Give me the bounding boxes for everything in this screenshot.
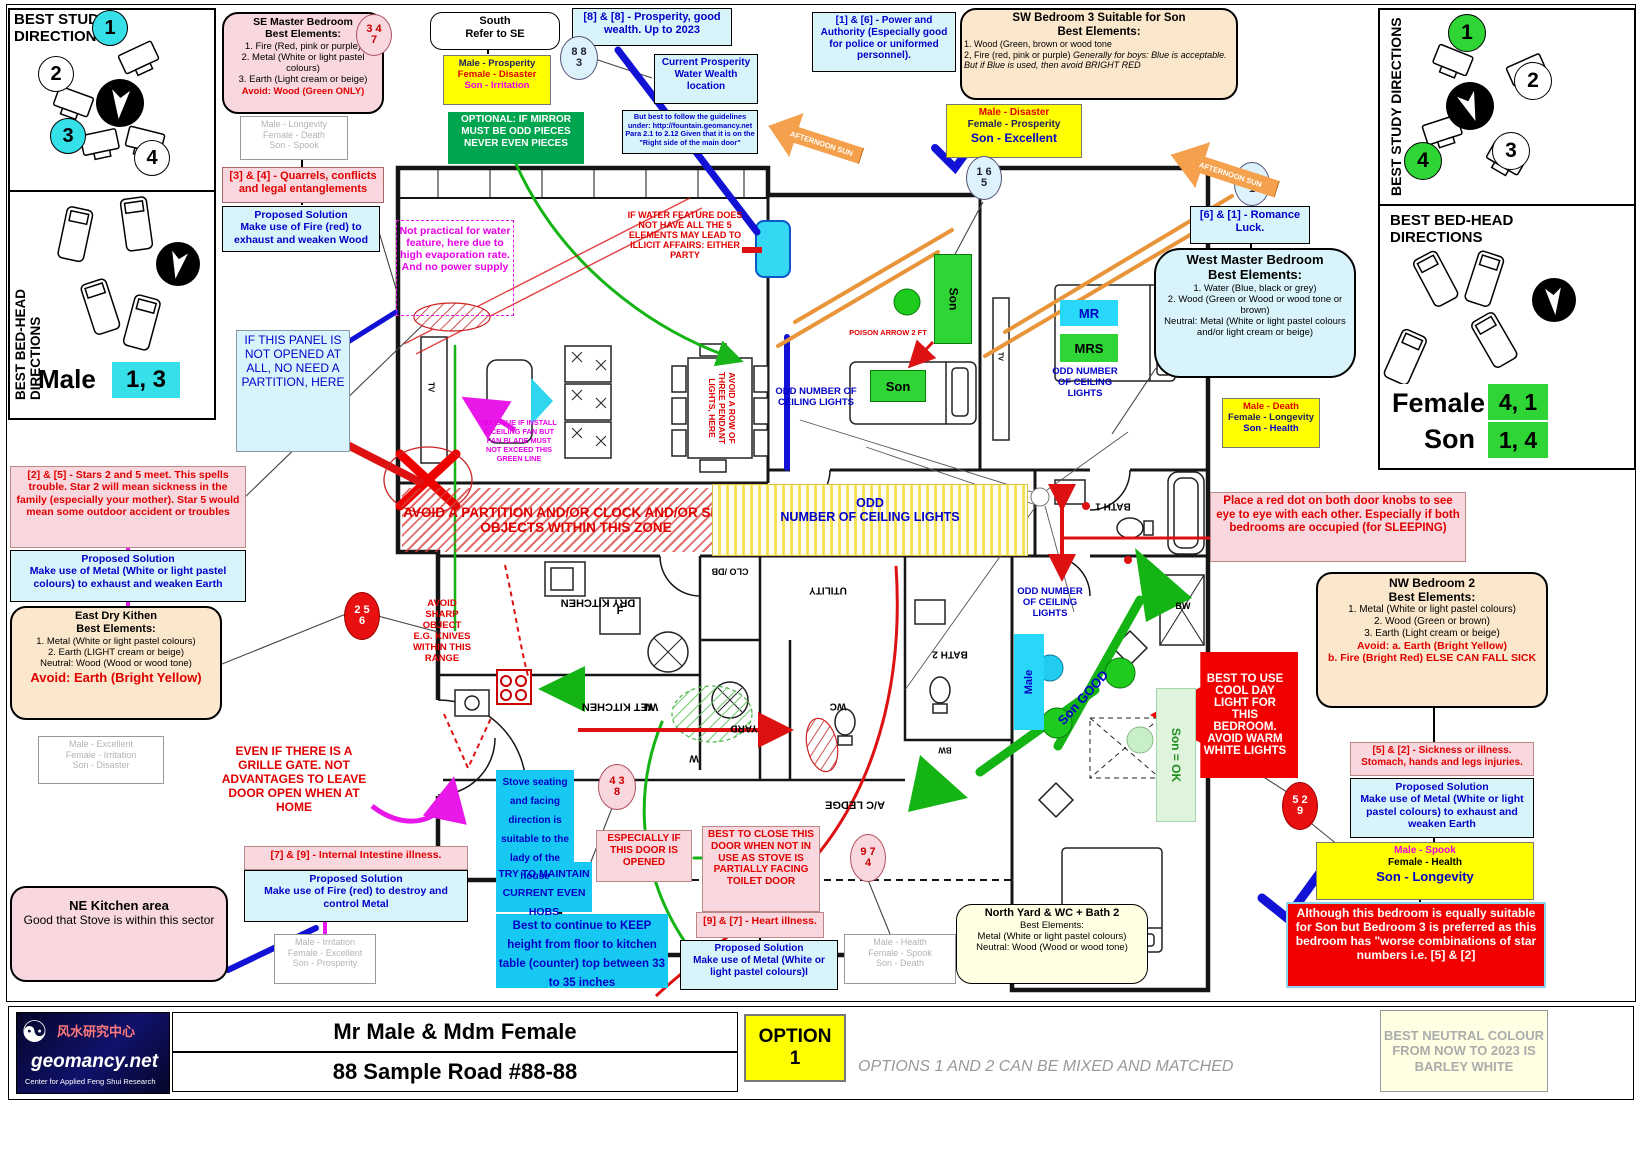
- callout-avoid-sharp: AVOID SHARP OBJECT E.G. KNIVES WITHIN TH…: [412, 598, 472, 664]
- room-label-utility: UTILITY: [795, 584, 861, 595]
- callout-intestine-79: [7] & [9] - Internal Intestine illness.: [244, 846, 468, 870]
- bedhead-right-son-values: 1, 4: [1488, 422, 1548, 458]
- bedhead-right-female-label: Female: [1392, 388, 1485, 419]
- callout-red-dot: Place a red dot on both door knobs to se…: [1210, 492, 1466, 562]
- odd-lights-label-3: ODD NUMBER OF CEILING LIGHTS: [1012, 586, 1088, 619]
- callout-north-yard: North Yard & WC + Bath 2 Best Elements: …: [956, 904, 1148, 984]
- room-label-tv-west: TV: [996, 352, 1003, 361]
- logo-tagline: Center for Applied Feng Shui Research: [25, 1077, 156, 1086]
- star-badge-256: 2 56: [344, 592, 380, 640]
- outcome-ne-kitchen: Male - Irritation Female - Excellent Son…: [274, 934, 376, 984]
- callout-illicit: IF WATER FEATURE DOES NOT HAVE ALL THE 5…: [624, 210, 746, 260]
- son-tag-vertical: Son: [934, 254, 972, 344]
- callout-quarrels: [3] & [4] - Quarrels, conflicts and lega…: [222, 167, 384, 203]
- room-label-tv-living: TV: [426, 382, 434, 392]
- room-label-ac-ledge: A/C LEDGE: [800, 798, 910, 810]
- room-label-bw-nw: BW: [1170, 602, 1196, 611]
- room-label-bw-bath: BW: [932, 745, 958, 753]
- footer-logo: ☯ 风水研究中心 geomancy.net Center for Applied…: [16, 1012, 170, 1094]
- callout-stars-25: [2] & [5] - Stars 2 and 5 meet. This spe…: [10, 466, 246, 548]
- callout-sickness-52: [5] & [2] - Sickness or illness. Stomach…: [1350, 742, 1534, 776]
- callout-east-kitchen: East Dry Kithen Best Elements: 1. Metal …: [10, 606, 222, 720]
- study-right-num-3: 3: [1492, 132, 1530, 170]
- solution-quarrels: Proposed Solution Make use of Fire (red)…: [222, 206, 380, 252]
- study-left-num-2: 2: [38, 56, 74, 92]
- callout-stove-seating: Stove seating and facing direction is su…: [496, 770, 574, 862]
- male-tag: Male: [1014, 634, 1044, 730]
- star-badge-883: 8 83: [560, 36, 598, 80]
- solution-97: Proposed Solution Make use of Metal (Whi…: [680, 940, 838, 990]
- study-left-num-3: 3: [50, 118, 86, 154]
- yin-yang-icon: ☯: [21, 1015, 48, 1050]
- star-badge-347: 3 47: [356, 14, 392, 56]
- room-label-yard: YARD: [716, 722, 772, 733]
- room-label-washer: W: [686, 752, 702, 763]
- callout-sw-bedroom3: SW Bedroom 3 Suitable for Son Best Eleme…: [960, 8, 1238, 100]
- logo-brand: geomancy.net: [31, 1051, 158, 1073]
- callout-romance: [6] & [1] - Romance Luck.: [1190, 206, 1310, 244]
- bedhead-right-son-label: Son: [1424, 424, 1475, 455]
- callout-nw-bedroom2: NW Bedroom 2 Best Elements: 1. Metal (Wh…: [1316, 572, 1548, 708]
- room-label-wc: WC: [820, 700, 856, 711]
- callout-especially-door: ESPECIALLY IF THIS DOOR IS OPENED: [596, 830, 692, 882]
- study-left-num-4: 4: [134, 140, 170, 176]
- study-right-num-1: 1: [1448, 14, 1486, 52]
- callout-mirror: OPTIONAL: IF MIRROR MUST BE ODD PIECES N…: [448, 112, 584, 164]
- callout-counter-height: Best to continue to KEEP height from flo…: [496, 914, 668, 988]
- callout-pendant-lights: AVOID A ROW OF THREE PENDANT LIGHTS, HER…: [676, 362, 768, 454]
- star-badge-165: 1 65: [966, 156, 1002, 200]
- outcome-west: Male - Death Female - Longevity Son - He…: [1222, 398, 1320, 448]
- room-label-m: M: [640, 700, 656, 711]
- feng-shui-floorplan-sheet: AVOID A PARTITION AND/OR CLOCK AND/OR SH…: [0, 0, 1640, 1160]
- bedhead-left-person: Male: [38, 364, 96, 395]
- outcome-sw: Male - Disaster Female - Prosperity Son …: [946, 104, 1082, 158]
- callout-heart-97: [9] & [7] - Heart illness.: [696, 912, 824, 938]
- callout-close-door: BEST TO CLOSE THIS DOOR WHEN NOT IN USE …: [702, 826, 820, 912]
- callout-power-authority: [1] & [6] - Power and Authority (Especia…: [812, 12, 956, 72]
- outcome-nw: Male - Spook Female - Health Son - Longe…: [1316, 842, 1534, 900]
- outcome-south: Male - Prosperity Female - Disaster Son …: [443, 55, 551, 105]
- callout-west-master: West Master Bedroom Best Elements: 1. Wa…: [1154, 248, 1356, 378]
- room-label-wet-kitchen: WET KITCHEN: [565, 700, 675, 712]
- odd-lights-label-1: ODD NUMBER OF CEILING LIGHTS: [766, 386, 866, 408]
- study-left-num-1: 1: [92, 10, 128, 46]
- star-badge-529: 5 29: [1282, 782, 1318, 830]
- study-right-num-4: 4: [1404, 142, 1442, 180]
- son-ok-band: Son = OK: [1156, 688, 1196, 822]
- star-badge-974: 9 74: [850, 834, 886, 882]
- outcome-se: Male - Longevity Female - Death Son - Sp…: [240, 116, 348, 160]
- bedhead-right-female-values: 4, 1: [1488, 384, 1548, 420]
- footer-client: Mr Male & Mdm Female: [172, 1012, 738, 1052]
- outcome-east: Male - Excellent Female - Irritation Son…: [38, 736, 164, 784]
- room-label-clo-db: CLO /DB: [702, 566, 758, 575]
- outcome-north: Male - Health Female - Spook Son - Death: [844, 934, 956, 984]
- odd-lights-label-2: ODD NUMBER OF CEILING LIGHTS: [1046, 366, 1124, 399]
- room-label-bath1: BATH 1: [1078, 500, 1148, 511]
- callout-poison-arrow: POISON ARROW 2 FT: [848, 328, 928, 337]
- callout-grille-gate: EVEN IF THERE IS A GRILLE GATE. NOT ADVA…: [220, 744, 368, 814]
- callout-panel-note: IF THIS PANEL IS NOT OPENED AT ALL, NO N…: [236, 330, 350, 452]
- callout-ceiling-fan: NO ISSUE IF INSTALL A CEILING FAN BUT FA…: [480, 418, 558, 463]
- callout-water-feature: Not practical for water feature, here du…: [396, 220, 514, 316]
- bedhead-beds-right: [1382, 244, 1628, 384]
- logo-chinese: 风水研究中心: [57, 1021, 135, 1040]
- callout-south: South Refer to SE: [430, 12, 560, 50]
- son-tag-bed: Son: [870, 370, 926, 402]
- solution-25: Proposed Solution Make use of Metal (Whi…: [10, 550, 246, 602]
- footer-mixed-note: OPTIONS 1 AND 2 CAN BE MIXED AND MATCHED: [858, 1058, 1278, 1076]
- solution-79: Proposed Solution Make use of Fire (red)…: [244, 870, 468, 922]
- callout-guidelines: But best to follow the guidelines under:…: [622, 110, 758, 154]
- callout-prosperity-88: [8] & [8] - Prosperity, good wealth. Up …: [572, 8, 732, 46]
- footer-neutral-note: BEST NEUTRAL COLOUR FROM NOW TO 2023 IS …: [1380, 1010, 1548, 1092]
- callout-current-prosperity: Current Prosperity Water Wealth location: [654, 54, 758, 104]
- callout-ne-kitchen: NE Kitchen area Good that Stove is withi…: [10, 886, 228, 982]
- mr-tag: MR: [1060, 300, 1118, 326]
- room-label-fridge: F: [612, 606, 628, 618]
- footer-option-badge: OPTION 1: [744, 1014, 846, 1082]
- star-badge-438: 4 38: [598, 764, 636, 810]
- study-right-num-2: 2: [1514, 62, 1552, 100]
- bedhead-beds-left: [50, 194, 210, 364]
- bedhead-left-values: 1, 3: [112, 362, 180, 398]
- bedhead-right-title: BEST BED-HEAD DIRECTIONS: [1390, 212, 1560, 247]
- room-label-bath2: BATH 2: [915, 648, 985, 659]
- avoid-partition-text: AVOID A PARTITION AND/OR CLOCK AND/OR SH…: [402, 488, 750, 552]
- callout-although: Although this bedroom is equally suitabl…: [1286, 902, 1546, 988]
- footer-address: 88 Sample Road #88-88: [172, 1052, 738, 1092]
- room-label-dry-kitchen: DRY KITCHEN: [548, 596, 648, 608]
- odd-lights-main-label: ODD NUMBER OF CEILING LIGHTS: [730, 496, 1010, 524]
- solution-52: Proposed Solution Make use of Metal (Whi…: [1350, 778, 1534, 838]
- mrs-tag: MRS: [1060, 334, 1118, 362]
